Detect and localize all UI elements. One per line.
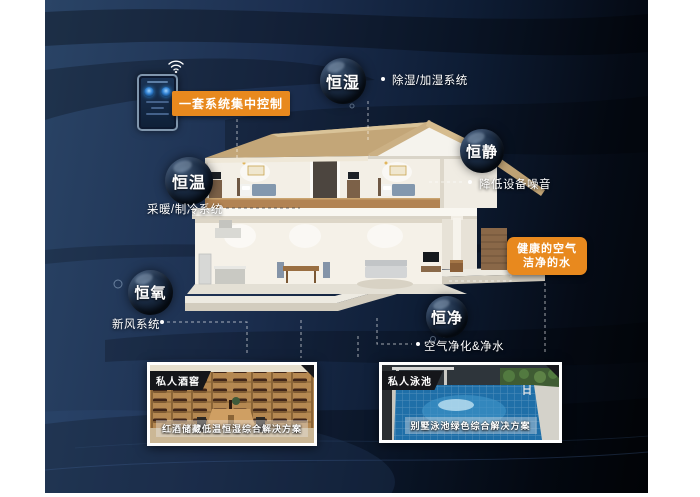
card-corner-fold	[301, 365, 314, 378]
wine-cellar-caption: 红酒储藏低温恒湿综合解决方案	[156, 420, 308, 437]
pool-card: 私人泳池 别墅泳池绿色综合解决方案	[379, 362, 562, 443]
card-corner-fold	[546, 365, 559, 378]
desc-constant-oxygen: 新风系统	[112, 316, 160, 332]
wine-cellar-card: 私人酒窖 红酒储藏低温恒湿综合解决方案	[147, 362, 317, 446]
phone-screen-header	[147, 81, 168, 83]
phone-screen-row	[146, 113, 169, 115]
smart-home-poster: { "control": { "label": "一套系统集中控制" }, "f…	[0, 0, 700, 497]
phone-screen-row	[146, 101, 169, 103]
central-control-tag: 一套系统集中控制	[172, 91, 290, 116]
healthy-air-water-box: 健康的空气 洁净的水	[507, 237, 587, 275]
control-knob-icon	[161, 87, 171, 97]
bubble-constant-purity: 恒净	[426, 296, 468, 338]
bubble-constant-humidity: 恒湿	[320, 58, 366, 104]
clean-water-line: 洁净的水	[511, 256, 583, 270]
control-knob-icon	[144, 87, 154, 97]
bubble-constant-quiet: 恒静	[460, 129, 504, 173]
phone-screen-row	[151, 107, 164, 109]
bubble-constant-oxygen: 恒氧	[128, 270, 173, 315]
healthy-air-line: 健康的空气	[511, 242, 583, 256]
pool-caption: 别墅泳池绿色综合解决方案	[404, 417, 536, 434]
desc-constant-quiet: 降低设备噪音	[479, 176, 551, 192]
desc-constant-temperature: 采暖/制冷系统	[147, 201, 223, 217]
bubble-constant-temperature: 恒温	[165, 157, 213, 205]
desc-constant-purity: 空气净化&净水	[424, 338, 504, 354]
house-cutaway-illustration	[185, 108, 561, 350]
desc-constant-humidity: 除湿/加湿系统	[392, 72, 468, 88]
wine-cellar-tag: 私人酒窖	[150, 371, 211, 390]
phone-screen	[141, 78, 174, 127]
pool-tag: 私人泳池	[382, 371, 443, 390]
wifi-icon	[167, 58, 185, 73]
